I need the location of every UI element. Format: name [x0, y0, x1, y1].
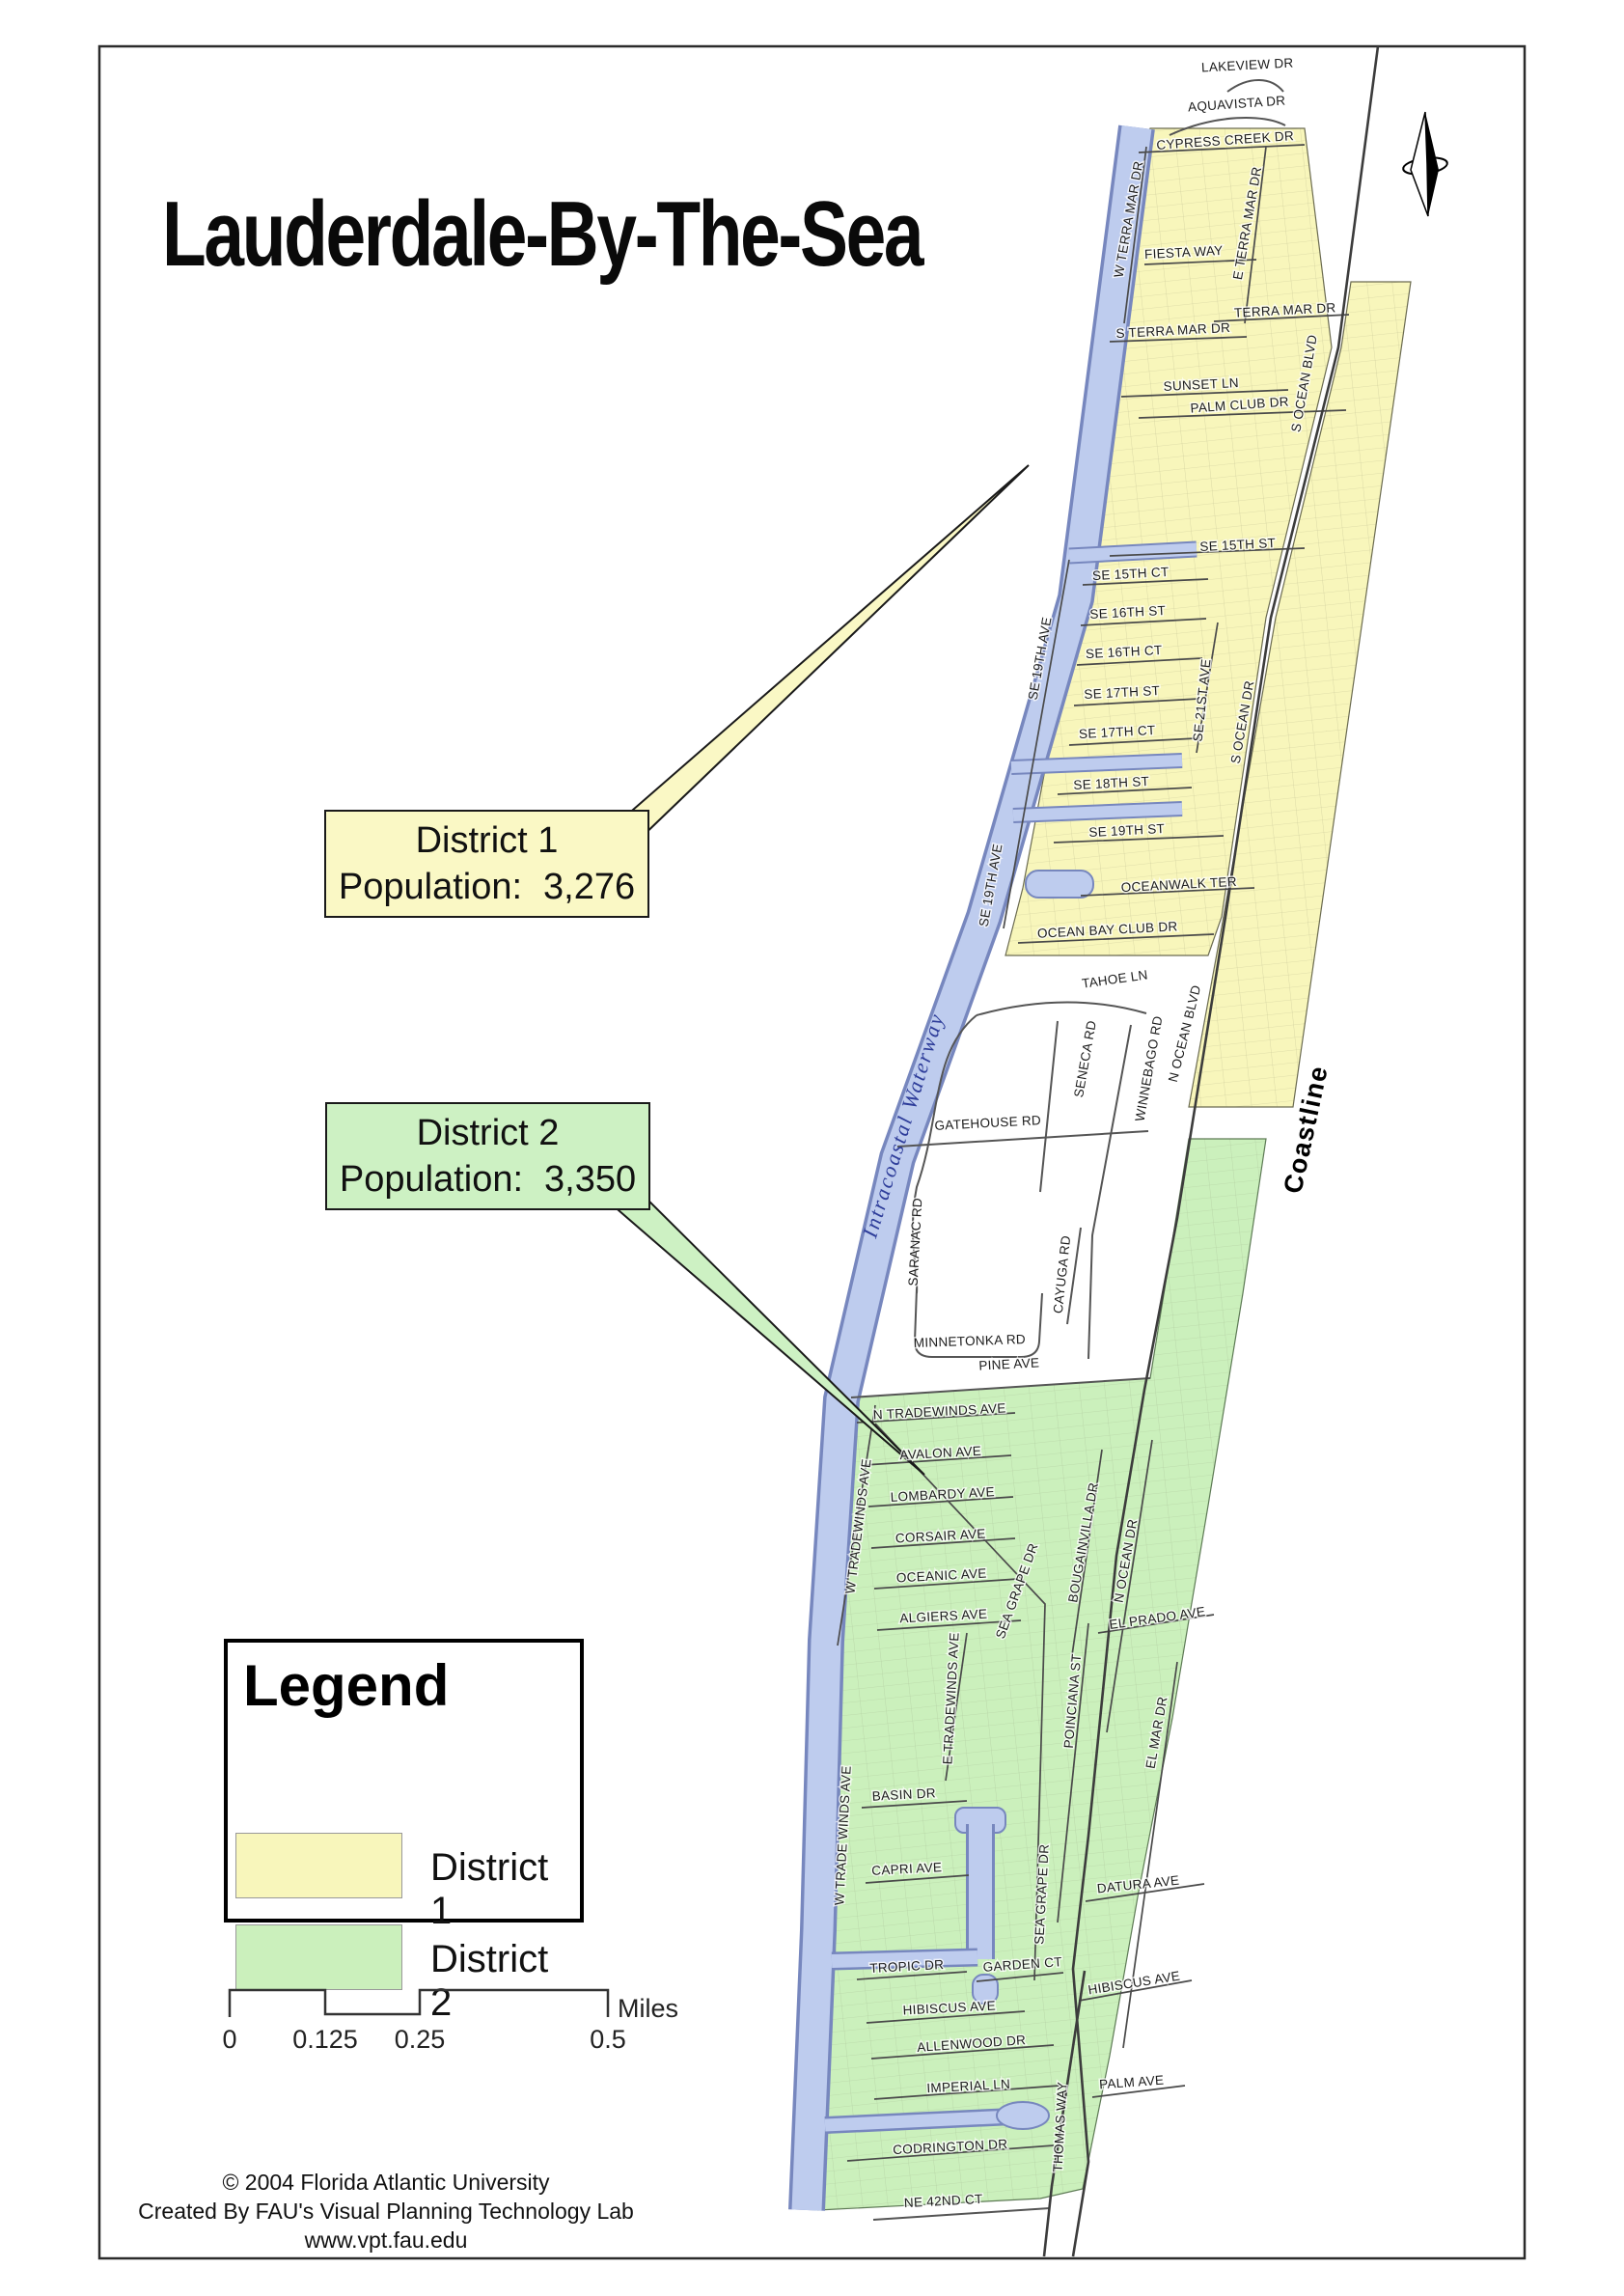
scale-bar-line: [230, 1990, 608, 2017]
district1-swatch: [235, 1833, 402, 1898]
district1-callout-name: District 1: [416, 817, 559, 864]
credit-line-url: www.vpt.fau.edu: [135, 2226, 637, 2255]
scale-bar: 0 0.125 0.25 0.5 Miles: [210, 1971, 712, 2062]
district2-population-value: 3,350: [544, 1159, 636, 1200]
district2-callout: District 2 Population:3,350: [325, 1102, 650, 1210]
scale-tick-0125: 0.125: [292, 2025, 358, 2055]
credit-line-author: Created By FAU's Visual Planning Technol…: [135, 2197, 637, 2226]
district2-callout-population: Population:3,350: [340, 1156, 636, 1203]
page-title: Lauderdale-By-The-Sea: [162, 181, 922, 288]
district1-population-label: Population:: [339, 867, 522, 907]
legend-label-district1: District 1: [430, 1846, 580, 1933]
district2-population-label: Population:: [340, 1159, 523, 1200]
legend-title: Legend: [243, 1652, 580, 1719]
map-page: LAKEVIEW DRAQUAVISTA DRCYPRESS CREEK DRW…: [0, 0, 1624, 2296]
scale-tick-025: 0.25: [395, 2025, 446, 2055]
scale-unit-label: Miles: [618, 1994, 678, 2024]
credit-line-copyright: © 2004 Florida Atlantic University: [135, 2168, 637, 2197]
district1-callout-population: Population:3,276: [339, 864, 635, 910]
credits: © 2004 Florida Atlantic University Creat…: [135, 2168, 637, 2255]
scale-tick-05: 0.5: [590, 2025, 626, 2055]
district2-callout-name: District 2: [417, 1110, 560, 1156]
district1-population-value: 3,276: [543, 867, 635, 907]
scale-tick-0: 0: [222, 2025, 236, 2055]
district1-callout: District 1 Population:3,276: [324, 810, 649, 918]
legend: Legend District 1 District 2: [224, 1639, 584, 1923]
